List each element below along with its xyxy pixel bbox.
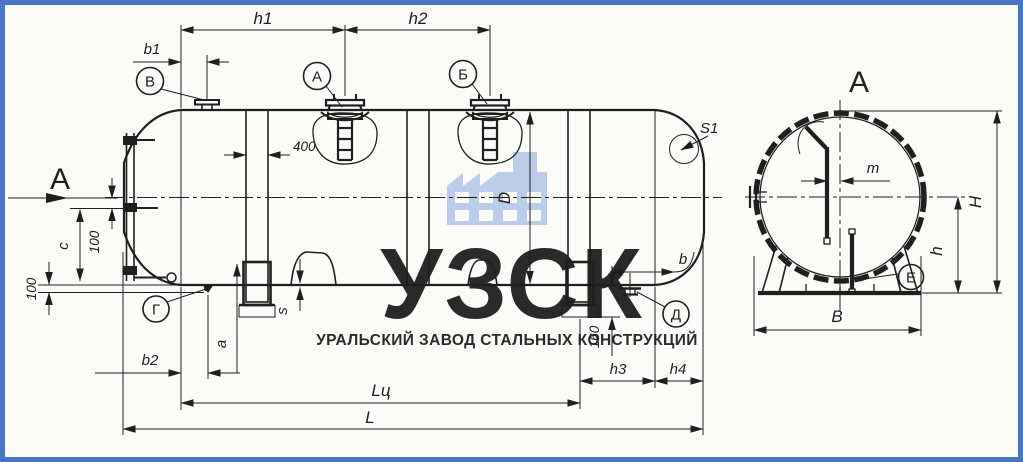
dim-h-label: h [927, 246, 946, 255]
dimensions-side: h1 h2 b1 400 D c 100 100 b2 a s [24, 9, 718, 435]
dim-100-lower-label: 100 [24, 277, 39, 300]
dim-h2-label: h2 [409, 9, 428, 28]
band-1 [246, 110, 268, 302]
callout-b: Б [450, 61, 488, 105]
dim-l-label: L [365, 408, 374, 427]
dim-h4-label: h4 [670, 361, 687, 378]
watermark-subtitle: УРАЛЬСКИЙ ЗАВОД СТАЛЬНЫХ КОНСТРУКЦИЙ [316, 331, 698, 349]
dim-400-label: 400 [293, 139, 316, 154]
manhole-b [458, 94, 522, 164]
dim-m-label: m [867, 160, 880, 177]
dim-B-label: B [831, 307, 842, 326]
callout-a-label: А [312, 69, 322, 86]
dimensions-section: m H h B [754, 111, 1002, 336]
support-left [239, 262, 275, 317]
dim-H-label: H [966, 195, 985, 208]
dim-s1-label: S1 [700, 120, 718, 137]
dim-lc-label: Lц [371, 381, 390, 400]
dim-h1-label: h1 [254, 9, 273, 28]
section-arrow-label: А [50, 163, 70, 196]
callout-v-label: В [145, 74, 155, 91]
tank-drawing-canvas: УЗСК УРАЛЬСКИЙ ЗАВОД СТАЛЬНЫХ КОНСТРУКЦИ… [0, 0, 1023, 462]
dim-h3-label: h3 [610, 361, 627, 378]
dim-b2-label: b2 [142, 352, 159, 369]
manhole-a [313, 94, 377, 164]
callout-v: В [137, 68, 205, 101]
callout-e-label: Е [906, 270, 916, 287]
dim-s-label: s [274, 307, 291, 315]
dim-160-label: 160 [587, 325, 602, 348]
nozzle-v [195, 100, 219, 110]
callout-d: Д [637, 292, 689, 327]
dip-pipe-1-inlet [806, 127, 826, 148]
dim-100-upper-label: 100 [87, 230, 102, 253]
external-ladder [123, 133, 176, 282]
watermark: УЗСК УРАЛЬСКИЙ ЗАВОД СТАЛЬНЫХ КОНСТРУКЦИ… [316, 152, 698, 349]
dim-b1-label: b1 [144, 41, 161, 58]
section-cut-mark: А [8, 163, 118, 203]
section-title: А [849, 66, 869, 99]
section-view: А Е [745, 66, 1002, 336]
dim-d-label: D [495, 192, 514, 204]
callout-d-label: Д [671, 307, 681, 324]
internal-ladder [338, 119, 352, 160]
callout-b-label: Б [458, 67, 468, 84]
bottom-lug-1 [291, 252, 336, 285]
dim-a-label: a [213, 340, 230, 348]
dim-b-label: b [679, 251, 687, 268]
tank-drawing-page: УЗСК УРАЛЬСКИЙ ЗАВОД СТАЛЬНЫХ КОНСТРУКЦИ… [0, 0, 1023, 462]
dim-c-label: c [55, 242, 72, 250]
callout-g-label: Г [152, 302, 160, 319]
